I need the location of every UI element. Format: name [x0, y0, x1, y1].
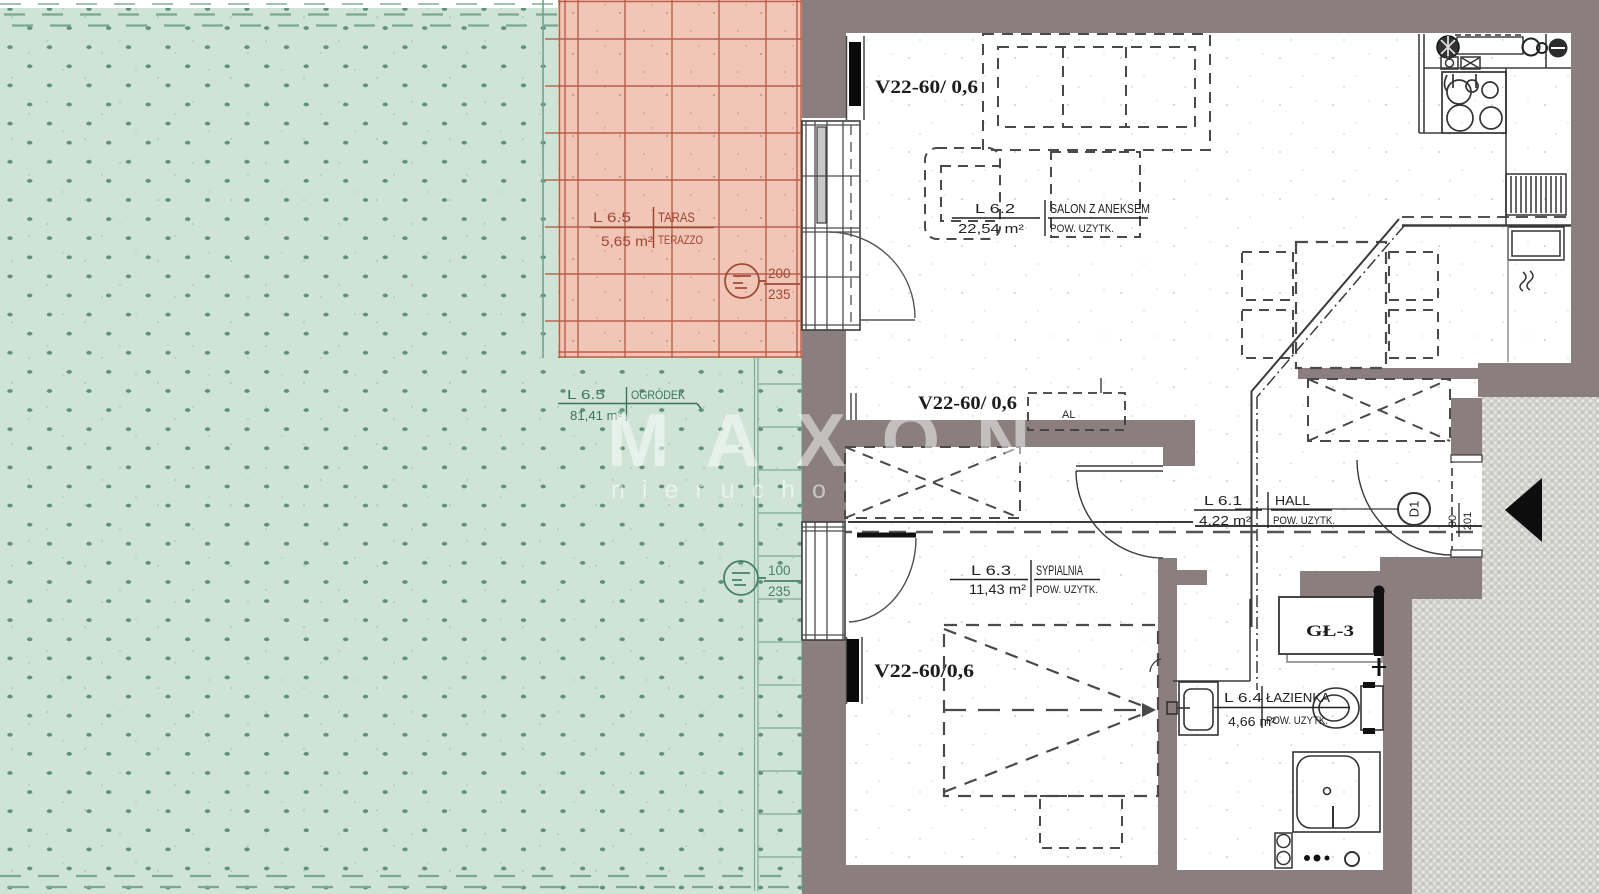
svg-text:V22-60/ 0,6: V22-60/ 0,6 — [875, 78, 978, 98]
svg-text:5,65 m²: 5,65 m² — [601, 233, 653, 249]
svg-text:D1: D1 — [1407, 501, 1422, 518]
svg-text:MAXON: MAXON — [607, 398, 1066, 482]
svg-text:90: 90 — [1447, 515, 1459, 527]
svg-text:200: 200 — [768, 266, 791, 281]
svg-text:235: 235 — [768, 287, 791, 302]
svg-text:nierucho: nierucho — [611, 476, 843, 504]
svg-text:L 6.1: L 6.1 — [1204, 493, 1242, 508]
svg-text:100: 100 — [768, 563, 791, 578]
svg-text:POW. UZYTK.: POW. UZYTK. — [1266, 715, 1328, 727]
svg-text:TARAS: TARAS — [658, 209, 695, 225]
svg-text:HALL: HALL — [1275, 493, 1310, 508]
svg-text:11,43 m²: 11,43 m² — [969, 582, 1027, 597]
svg-text:ŁAZIENKA: ŁAZIENKA — [1266, 690, 1330, 705]
svg-text:POW. UZYTK.: POW. UZYTK. — [1050, 223, 1114, 235]
svg-text:22,54 m²: 22,54 m² — [958, 221, 1025, 236]
svg-text:235: 235 — [768, 584, 791, 599]
svg-text:L 6.5: L 6.5 — [593, 209, 631, 225]
svg-text:4,22 m²: 4,22 m² — [1199, 513, 1252, 528]
svg-text:SYPIALNIA: SYPIALNIA — [1036, 563, 1083, 578]
svg-text:201: 201 — [1462, 512, 1474, 530]
svg-text:TERAZZO: TERAZZO — [658, 235, 703, 247]
svg-text:L 6.4: L 6.4 — [1224, 690, 1262, 705]
svg-text:POW. UZYTK.: POW. UZYTK. — [1273, 515, 1335, 527]
svg-text:GŁ-3: GŁ-3 — [1306, 623, 1354, 640]
svg-text:POW. UZYTK.: POW. UZYTK. — [1036, 584, 1098, 596]
svg-text:L 6.5: L 6.5 — [567, 387, 605, 402]
svg-text:V22-60/0,6: V22-60/0,6 — [874, 662, 974, 682]
svg-text:L 6.3: L 6.3 — [971, 563, 1011, 578]
svg-text:SALON Z ANEKSEM: SALON Z ANEKSEM — [1050, 201, 1150, 216]
svg-text:L 6.2: L 6.2 — [975, 201, 1015, 216]
